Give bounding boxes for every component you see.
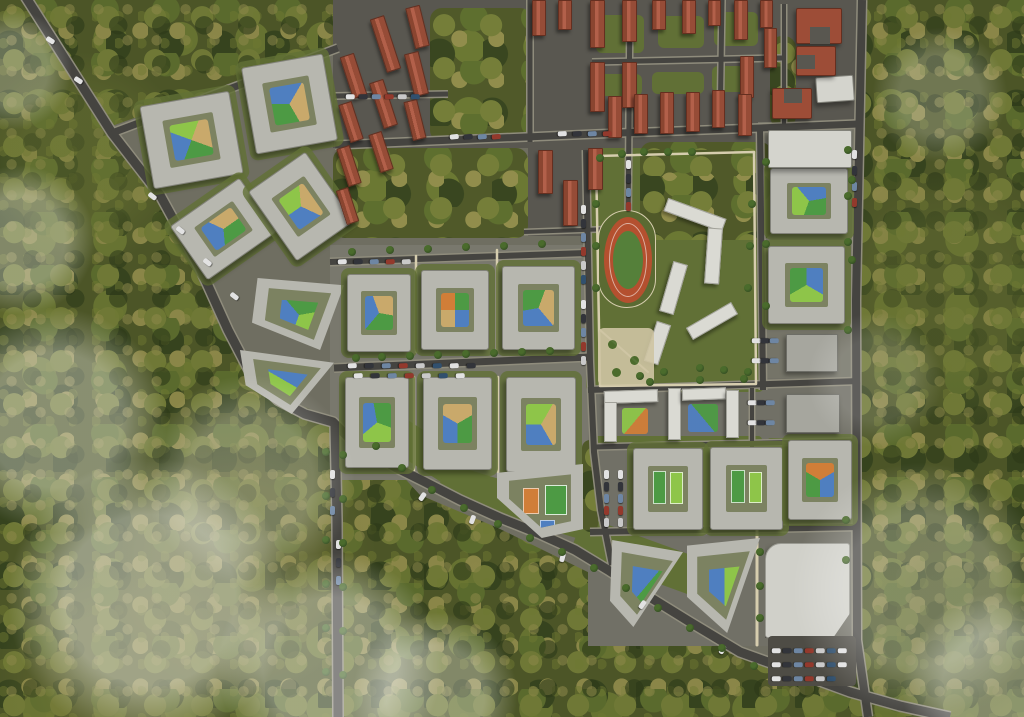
fog-patch <box>0 140 120 340</box>
masterplan-aerial-view <box>0 0 1024 717</box>
fog-patch <box>110 340 390 620</box>
fog-patch <box>870 560 1024 717</box>
fog-patch <box>850 5 1024 185</box>
fog-patch <box>0 0 92 150</box>
fog-layer <box>0 0 1024 717</box>
fog-patch <box>785 290 965 470</box>
